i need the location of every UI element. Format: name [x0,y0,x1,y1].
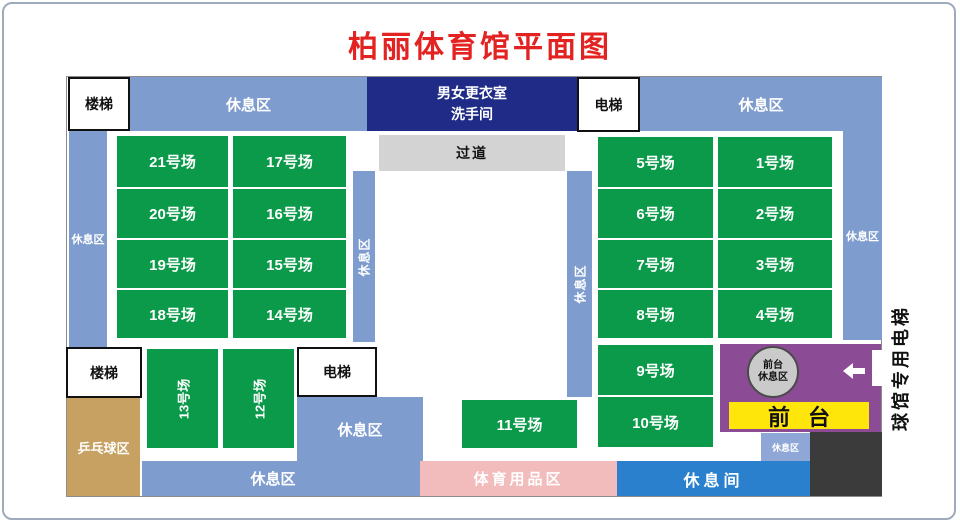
court-4: 4号场 [718,290,832,338]
dark-block [810,432,882,496]
elevator-top: 电梯 [577,77,640,132]
pingpong-area: 乒乓球区 [67,398,140,496]
court-14: 14号场 [233,290,346,338]
rest-strip-mid-left-label: 休息区 [356,237,373,276]
court-6: 6号场 [598,189,713,238]
court-12-label: 12号场 [249,378,268,418]
rest-area-bottom-center: 休息区 [297,397,423,461]
court-18: 18号场 [117,290,228,338]
rest-area-small-box: 休息区 [761,433,810,461]
court-11: 11号场 [462,400,577,448]
court-21: 21号场 [117,136,228,187]
court-12: 12号场 [223,349,294,448]
front-desk-rest-circle: 前台 休息区 [747,346,799,398]
court-19: 19号场 [117,240,228,288]
building-elevator-label: 球馆专用电梯 [887,305,913,431]
rest-strip-left: 休息区 [69,131,107,347]
elevator-bottom: 电梯 [297,347,377,397]
court-1: 1号场 [718,137,832,187]
court-17: 17号场 [233,136,346,187]
front-desk-circle-line1: 前台 [763,360,783,373]
rest-strip-mid-right: 休息区 [567,171,592,397]
rest-strip-mid-left: 休息区 [353,171,375,342]
front-desk-banner: 前台 [729,402,869,429]
front-desk-banner-label: 前台 [768,400,848,432]
rest-area-bottom-bar-label: 休息区 [198,461,348,496]
lounge-room: 休息间 [617,461,810,496]
court-9: 9号场 [598,345,713,395]
stairs-top: 楼梯 [68,77,130,131]
court-8: 8号场 [598,290,713,338]
entrance-arrow-icon [843,363,865,379]
court-2: 2号场 [718,189,832,238]
stairs-bottom: 楼梯 [66,347,142,398]
rest-area-top-left: 休息区 [130,77,367,131]
changing-room-line2: 洗手间 [451,104,493,125]
court-20: 20号场 [117,189,228,238]
changing-room: 男女更衣室 洗手间 [367,77,577,131]
sports-goods-area: 体育用品区 [420,461,617,496]
court-7: 7号场 [598,240,713,288]
court-15: 15号场 [233,240,346,288]
court-16: 16号场 [233,189,346,238]
rest-area-bottom-bar: 休息区 [142,461,420,496]
changing-room-line1: 男女更衣室 [437,83,507,104]
front-desk-circle-line2: 休息区 [758,372,788,385]
rest-strip-right: 休息区 [843,131,882,340]
floor-plan: 柏丽体育馆平面图 楼梯 休息区 男女更衣室 洗手间 电梯 休息区 过道 休息区 … [0,0,960,524]
court-5: 5号场 [598,137,713,187]
court-13: 13号场 [147,349,218,448]
rest-strip-mid-right-label: 休息区 [571,264,588,303]
entrance-door-opening [872,350,890,386]
court-3: 3号场 [718,240,832,288]
corridor: 过道 [379,135,565,171]
court-10: 10号场 [598,397,713,447]
page-title: 柏丽体育馆平面图 [0,22,960,66]
rest-area-top-right: 休息区 [640,77,882,131]
court-13-label: 13号场 [173,378,192,418]
